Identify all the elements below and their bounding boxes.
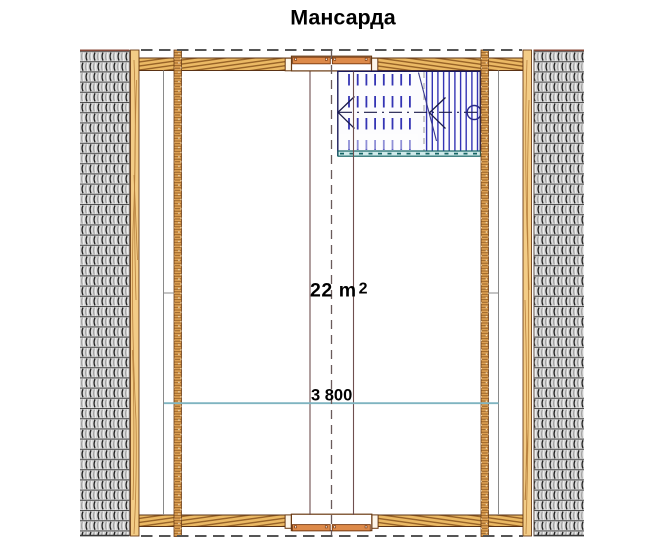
- svg-text:Мансарда: Мансарда: [290, 6, 397, 30]
- svg-text:22 m: 22 m: [310, 280, 357, 302]
- svg-text:3 800: 3 800: [311, 387, 352, 405]
- svg-text:2: 2: [359, 281, 368, 298]
